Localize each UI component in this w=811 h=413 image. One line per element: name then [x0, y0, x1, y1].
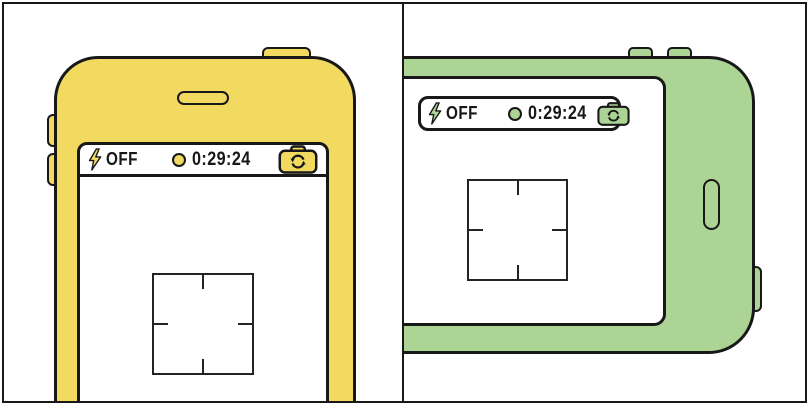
- record-dot-icon: [508, 107, 522, 121]
- camera-screen: OFF 0:29:24: [77, 142, 329, 403]
- focus-tick-bottom: [202, 359, 204, 373]
- focus-tick-top: [202, 275, 204, 289]
- flash-bolt-icon: [428, 102, 442, 125]
- recording-timer: 0:29:24: [192, 149, 251, 171]
- focus-tick-bottom: [517, 265, 519, 279]
- record-dot-icon: [172, 153, 186, 167]
- focus-frame: [152, 273, 254, 375]
- camera-status-bar: OFF 0:29:24: [80, 145, 326, 177]
- illustration-canvas: OFF 0:29:24: [0, 0, 811, 413]
- camera-status-bar: OFF 0:29:24: [418, 96, 621, 131]
- phone-landscape-body: OFF 0:29:24: [404, 56, 755, 354]
- focus-tick-top: [517, 181, 519, 195]
- camera-flip-icon: [278, 145, 318, 174]
- camera-flip-icon: [597, 102, 630, 126]
- focus-frame: [467, 179, 568, 281]
- earpiece-speaker: [177, 91, 229, 105]
- flash-bolt-icon: [88, 148, 102, 171]
- focus-tick-left: [154, 323, 168, 325]
- focus-tick-right: [552, 229, 566, 231]
- recording-timer: 0:29:24: [528, 103, 587, 125]
- focus-tick-right: [238, 323, 252, 325]
- flash-status-label: OFF: [106, 149, 138, 170]
- panel-landscape: OFF 0:29:24: [404, 2, 807, 403]
- flash-status-label: OFF: [446, 103, 478, 124]
- panel-portrait: OFF 0:29:24: [2, 2, 404, 403]
- phone-portrait-body: OFF 0:29:24: [54, 56, 356, 403]
- focus-tick-left: [469, 229, 483, 231]
- earpiece-speaker: [703, 179, 720, 230]
- camera-screen: OFF 0:29:24: [404, 76, 666, 326]
